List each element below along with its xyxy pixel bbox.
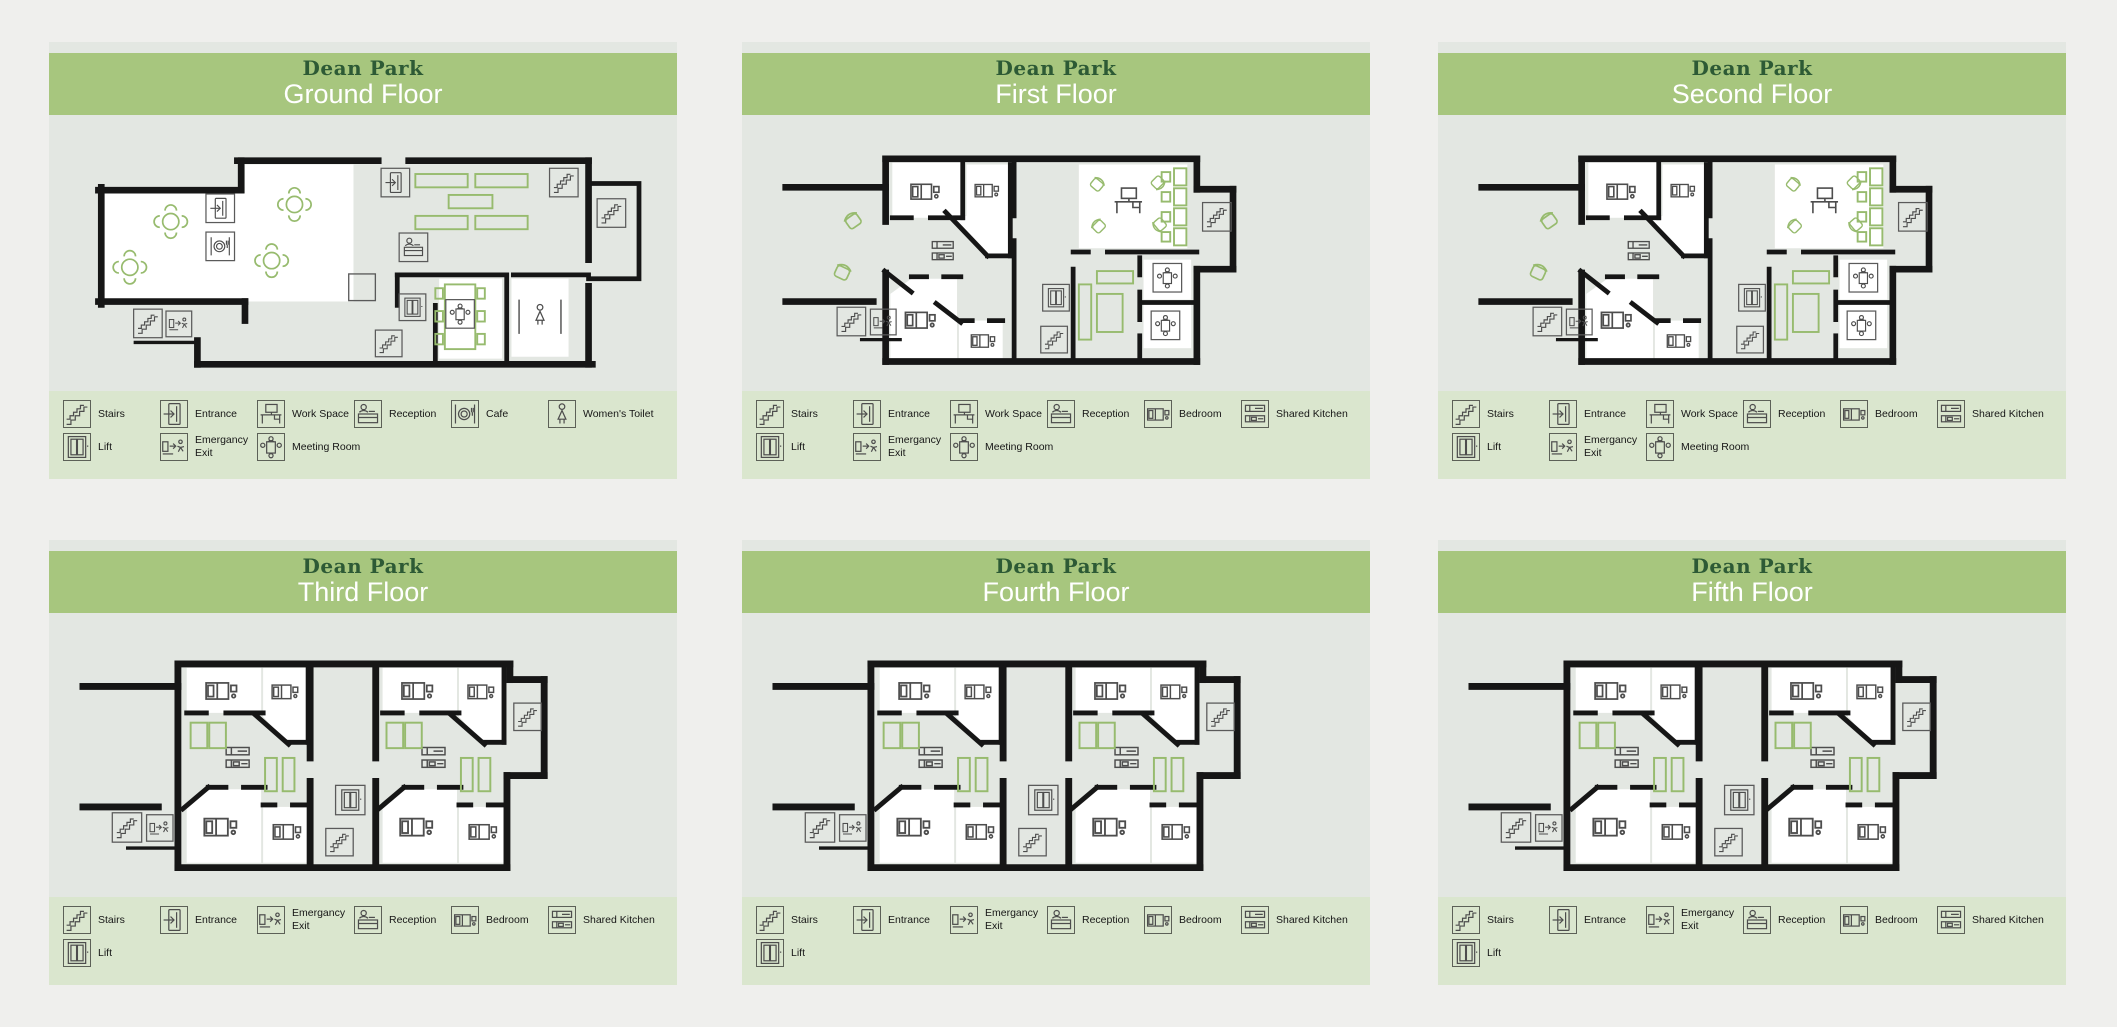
brand-title: Dean Park <box>1692 556 1813 576</box>
floor-plan-drawing <box>1438 613 2066 897</box>
legend-label: Reception <box>1778 914 1825 927</box>
legend-label: Reception <box>1082 914 1129 927</box>
toilet-icon <box>548 400 576 428</box>
legend-item-stairs: Stairs <box>756 400 853 428</box>
legend-label: Lift <box>1487 441 1501 454</box>
legend-label: Shared Kitchen <box>1972 914 2044 927</box>
meeting-icon <box>950 433 978 461</box>
panel-header: Dean Park Third Floor <box>49 551 677 613</box>
legend-item-meeting: Meeting Room <box>257 433 354 461</box>
legend-label: Stairs <box>791 408 818 421</box>
floor-title: First Floor <box>995 80 1117 110</box>
legend-label: Bedroom <box>1179 914 1222 927</box>
legend-label: Bedroom <box>1179 408 1222 421</box>
panel-third-floor: Dean Park Third Floor StairsEntranceEmer… <box>49 540 677 985</box>
legend: StairsEntranceEmergancy ExitReceptionBed… <box>742 897 1370 985</box>
floor-plan-drawing <box>49 613 677 897</box>
workspace-icon <box>950 400 978 428</box>
legend-item-bed: Bedroom <box>1840 400 1937 428</box>
legend-label: Bedroom <box>1875 408 1918 421</box>
plan-svg-office <box>1438 115 2066 391</box>
brand-title: Dean Park <box>996 556 1117 576</box>
legend-item-workspace: Work Space <box>257 400 354 428</box>
legend-item-reception: Reception <box>1047 400 1144 428</box>
floor-plan-drawing <box>1438 115 2066 391</box>
lift-icon <box>63 433 91 461</box>
legend-label: Emergancy Exit <box>985 907 1038 932</box>
meeting-icon <box>1646 433 1674 461</box>
legend-label: Reception <box>1778 408 1825 421</box>
legend: StairsEntranceEmergancy ExitReceptionBed… <box>1438 897 2066 985</box>
plan-svg-residential <box>742 613 1370 897</box>
bed-icon <box>1144 906 1172 934</box>
panel-fourth-floor: Dean Park Fourth Floor StairsEntranceEme… <box>742 540 1370 985</box>
legend-item-bed: Bedroom <box>451 906 548 934</box>
legend-label: Stairs <box>98 914 125 927</box>
legend-row: LiftEmergancy ExitMeeting Room <box>756 433 1356 461</box>
exit-icon <box>1646 906 1674 934</box>
legend-row: LiftEmergancy ExitMeeting Room <box>63 433 663 461</box>
legend-item-lift: Lift <box>63 433 160 461</box>
legend-label: Meeting Room <box>292 441 360 454</box>
legend-label: Reception <box>1082 408 1129 421</box>
legend-label: Emergancy Exit <box>1584 434 1637 459</box>
legend-label: Entrance <box>195 914 237 927</box>
reception-icon <box>354 400 382 428</box>
legend-item-meeting: Meeting Room <box>1646 433 1743 461</box>
legend-item-exit: Emergancy Exit <box>160 433 257 461</box>
legend-item-exit: Emergancy Exit <box>853 433 950 461</box>
legend-item-lift: Lift <box>1452 433 1549 461</box>
legend-item-entrance: Entrance <box>853 906 950 934</box>
legend-label: Emergancy Exit <box>195 434 248 459</box>
legend: StairsEntranceWork SpaceReceptionCafeWom… <box>49 391 677 479</box>
legend-item-exit: Emergancy Exit <box>257 906 354 934</box>
lift-icon <box>63 939 91 967</box>
legend-label: Emergancy Exit <box>292 907 345 932</box>
legend-label: Stairs <box>791 914 818 927</box>
lift-icon <box>1452 939 1480 967</box>
kitchen-icon <box>1937 400 1965 428</box>
floor-title: Ground Floor <box>283 80 442 110</box>
legend-label: Shared Kitchen <box>1276 914 1348 927</box>
panel-header: Dean Park First Floor <box>742 53 1370 115</box>
reception-icon <box>1743 906 1771 934</box>
panel-header: Dean Park Fourth Floor <box>742 551 1370 613</box>
legend-label: Stairs <box>1487 914 1514 927</box>
legend-item-bed: Bedroom <box>1144 906 1241 934</box>
legend-item-reception: Reception <box>1743 906 1840 934</box>
legend-row: Lift <box>1452 939 2052 967</box>
brand-title: Dean Park <box>303 58 424 78</box>
reception-icon <box>1047 906 1075 934</box>
legend-item-exit: Emergancy Exit <box>1549 433 1646 461</box>
kitchen-icon <box>1937 906 1965 934</box>
legend-item-stairs: Stairs <box>1452 400 1549 428</box>
entrance-icon <box>853 400 881 428</box>
legend-label: Work Space <box>985 408 1042 421</box>
legend-row: LiftEmergancy ExitMeeting Room <box>1452 433 2052 461</box>
legend-label: Entrance <box>888 408 930 421</box>
legend-label: Shared Kitchen <box>583 914 655 927</box>
legend-item-kitchen: Shared Kitchen <box>548 906 645 934</box>
legend-item-entrance: Entrance <box>160 906 257 934</box>
legend-row: StairsEntranceWork SpaceReceptionBedroom… <box>756 400 1356 428</box>
legend-item-lift: Lift <box>1452 939 1549 967</box>
legend-label: Entrance <box>888 914 930 927</box>
stairs-icon <box>756 906 784 934</box>
workspace-icon <box>1646 400 1674 428</box>
legend-item-entrance: Entrance <box>160 400 257 428</box>
entrance-icon <box>160 400 188 428</box>
brand-title: Dean Park <box>303 556 424 576</box>
legend-item-entrance: Entrance <box>1549 400 1646 428</box>
floor-title: Fifth Floor <box>1691 578 1813 608</box>
legend-item-lift: Lift <box>756 939 853 967</box>
panel-header: Dean Park Ground Floor <box>49 53 677 115</box>
legend-item-stairs: Stairs <box>63 906 160 934</box>
legend-item-meeting: Meeting Room <box>950 433 1047 461</box>
floor-title: Third Floor <box>298 578 429 608</box>
plan-svg-ground <box>49 115 677 391</box>
floor-plan-drawing <box>742 115 1370 391</box>
legend-row: StairsEntranceEmergancy ExitReceptionBed… <box>63 906 663 934</box>
workspace-icon <box>257 400 285 428</box>
legend-row: Lift <box>756 939 1356 967</box>
legend-item-workspace: Work Space <box>950 400 1047 428</box>
legend-row: StairsEntranceEmergancy ExitReceptionBed… <box>756 906 1356 934</box>
legend-label: Emergancy Exit <box>888 434 941 459</box>
legend-item-kitchen: Shared Kitchen <box>1937 906 2034 934</box>
entrance-icon <box>1549 906 1577 934</box>
legend-label: Lift <box>1487 947 1501 960</box>
legend-label: Shared Kitchen <box>1276 408 1348 421</box>
reception-icon <box>1047 400 1075 428</box>
legend-item-stairs: Stairs <box>1452 906 1549 934</box>
cafe-icon <box>451 400 479 428</box>
legend-label: Entrance <box>195 408 237 421</box>
legend: StairsEntranceEmergancy ExitReceptionBed… <box>49 897 677 985</box>
exit-icon <box>950 906 978 934</box>
entrance-icon <box>1549 400 1577 428</box>
legend-item-reception: Reception <box>354 906 451 934</box>
panel-header: Dean Park Second Floor <box>1438 53 2066 115</box>
legend-item-reception: Reception <box>1047 906 1144 934</box>
legend-item-kitchen: Shared Kitchen <box>1937 400 2034 428</box>
legend-item-reception: Reception <box>354 400 451 428</box>
floor-plan-drawing <box>49 115 677 391</box>
brand-title: Dean Park <box>996 58 1117 78</box>
legend-item-entrance: Entrance <box>853 400 950 428</box>
stairs-icon <box>63 400 91 428</box>
legend-item-reception: Reception <box>1743 400 1840 428</box>
legend-label: Meeting Room <box>985 441 1053 454</box>
entrance-icon <box>853 906 881 934</box>
floor-title: Fourth Floor <box>982 578 1129 608</box>
legend-label: Lift <box>98 441 112 454</box>
brand-title: Dean Park <box>1692 58 1813 78</box>
plan-svg-office <box>742 115 1370 391</box>
legend-label: Work Space <box>1681 408 1738 421</box>
bed-icon <box>1840 906 1868 934</box>
legend-item-kitchen: Shared Kitchen <box>1241 400 1338 428</box>
stairs-icon <box>756 400 784 428</box>
lift-icon <box>756 939 784 967</box>
legend-item-bed: Bedroom <box>1144 400 1241 428</box>
plan-svg-residential <box>1438 613 2066 897</box>
stairs-icon <box>1452 400 1480 428</box>
panel-ground-floor: Dean Park Ground Floor StairsEntranceWor… <box>49 42 677 479</box>
entrance-icon <box>160 906 188 934</box>
legend-label: Women's Toilet <box>583 408 653 421</box>
legend-row: StairsEntranceEmergancy ExitReceptionBed… <box>1452 906 2052 934</box>
kitchen-icon <box>1241 400 1269 428</box>
legend-label: Bedroom <box>486 914 529 927</box>
legend-label: Lift <box>791 947 805 960</box>
legend-label: Reception <box>389 408 436 421</box>
kitchen-icon <box>1241 906 1269 934</box>
legend-item-exit: Emergancy Exit <box>950 906 1047 934</box>
legend-row: StairsEntranceWork SpaceReceptionCafeWom… <box>63 400 663 428</box>
floor-title: Second Floor <box>1672 80 1833 110</box>
legend-item-entrance: Entrance <box>1549 906 1646 934</box>
legend-label: Stairs <box>1487 408 1514 421</box>
legend-label: Entrance <box>1584 914 1626 927</box>
legend: StairsEntranceWork SpaceReceptionBedroom… <box>1438 391 2066 479</box>
exit-icon <box>1549 433 1577 461</box>
legend-label: Entrance <box>1584 408 1626 421</box>
panel-fifth-floor: Dean Park Fifth Floor StairsEntranceEmer… <box>1438 540 2066 985</box>
lift-icon <box>1452 433 1480 461</box>
legend-item-lift: Lift <box>756 433 853 461</box>
legend-item-stairs: Stairs <box>756 906 853 934</box>
legend-row: Lift <box>63 939 663 967</box>
legend-item-bed: Bedroom <box>1840 906 1937 934</box>
legend-label: Reception <box>389 914 436 927</box>
legend-label: Cafe <box>486 408 508 421</box>
legend-item-kitchen: Shared Kitchen <box>1241 906 1338 934</box>
panel-first-floor: Dean Park First Floor StairsEntranceWork… <box>742 42 1370 479</box>
kitchen-icon <box>548 906 576 934</box>
legend-label: Bedroom <box>1875 914 1918 927</box>
reception-icon <box>1743 400 1771 428</box>
exit-icon <box>257 906 285 934</box>
legend-label: Work Space <box>292 408 349 421</box>
legend-label: Meeting Room <box>1681 441 1749 454</box>
lift-icon <box>756 433 784 461</box>
bed-icon <box>1840 400 1868 428</box>
meeting-icon <box>257 433 285 461</box>
legend-item-cafe: Cafe <box>451 400 548 428</box>
plan-svg-residential <box>49 613 677 897</box>
legend-item-stairs: Stairs <box>63 400 160 428</box>
bed-icon <box>451 906 479 934</box>
stairs-icon <box>63 906 91 934</box>
panel-header: Dean Park Fifth Floor <box>1438 551 2066 613</box>
floor-plan-poster-page: { "colors": { "page_bg": "#efefed", "pan… <box>0 0 2117 1027</box>
bed-icon <box>1144 400 1172 428</box>
legend-item-lift: Lift <box>63 939 160 967</box>
floor-plan-drawing <box>742 613 1370 897</box>
legend-label: Shared Kitchen <box>1972 408 2044 421</box>
legend-label: Emergancy Exit <box>1681 907 1734 932</box>
legend-item-toilet: Women's Toilet <box>548 400 645 428</box>
legend-row: StairsEntranceWork SpaceReceptionBedroom… <box>1452 400 2052 428</box>
stairs-icon <box>1452 906 1480 934</box>
legend-label: Lift <box>98 947 112 960</box>
reception-icon <box>354 906 382 934</box>
exit-icon <box>160 433 188 461</box>
legend-item-workspace: Work Space <box>1646 400 1743 428</box>
legend: StairsEntranceWork SpaceReceptionBedroom… <box>742 391 1370 479</box>
panel-second-floor: Dean Park Second Floor StairsEntranceWor… <box>1438 42 2066 479</box>
exit-icon <box>853 433 881 461</box>
legend-label: Stairs <box>98 408 125 421</box>
legend-item-exit: Emergancy Exit <box>1646 906 1743 934</box>
legend-label: Lift <box>791 441 805 454</box>
